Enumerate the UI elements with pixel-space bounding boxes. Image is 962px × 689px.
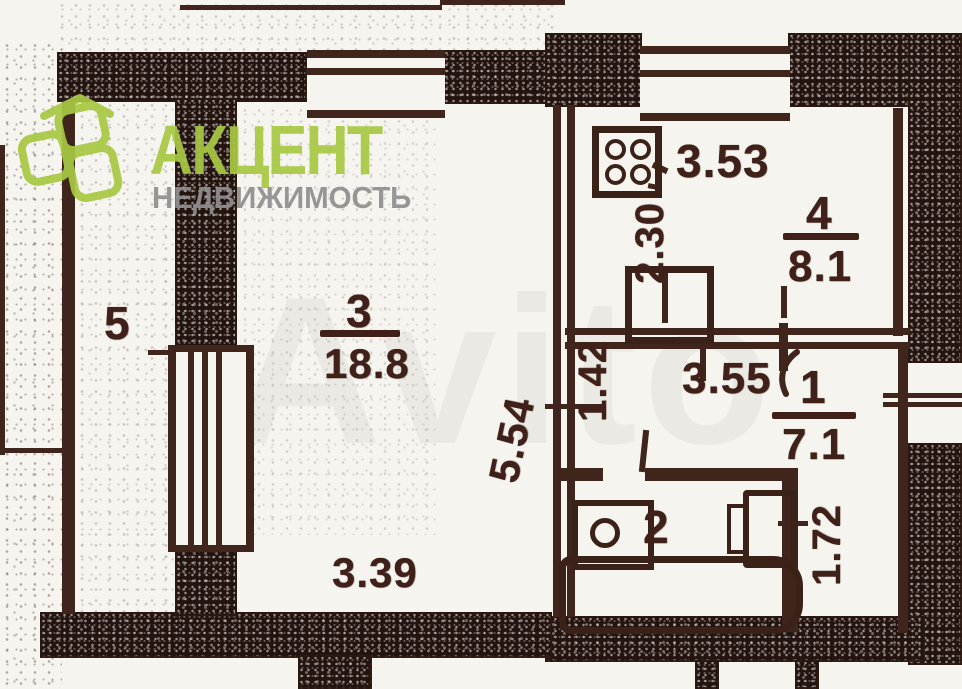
window-symbol <box>640 46 790 121</box>
wall-segment <box>788 33 910 107</box>
stove-burner <box>605 139 626 160</box>
bathroom-wall-line <box>645 468 792 481</box>
wall-segment <box>795 660 819 689</box>
stove-burner <box>630 139 651 160</box>
door-jamb-line <box>779 323 788 371</box>
fraction-bar <box>320 330 400 337</box>
window-pane-line <box>188 352 194 545</box>
area-label: 7.1 <box>782 420 846 470</box>
dimension-label: 3.53 <box>676 134 770 188</box>
room-number-label: 4 <box>806 186 833 240</box>
wall-segment <box>908 33 962 363</box>
wall-segment <box>40 612 552 658</box>
window-pane-line <box>307 68 445 75</box>
window-pane-line <box>640 70 790 77</box>
stove-icon <box>592 126 662 198</box>
dimension-label: 3.55 <box>682 354 772 404</box>
partition-wall-line <box>893 108 903 336</box>
logo-tagline-text: НЕДВИЖИМОСТЬ <box>152 180 411 216</box>
stove-burner <box>630 164 651 185</box>
sink-drain <box>590 518 620 548</box>
dimension-tick <box>781 286 787 318</box>
scan-edge-line <box>440 0 565 5</box>
dimension-label: 2.30 <box>629 198 671 288</box>
room-number-label: 2 <box>643 500 670 554</box>
wall-segment <box>695 660 719 689</box>
room-number-label: 5 <box>104 296 131 350</box>
scan-edge-line <box>0 145 5 455</box>
wall-segment <box>443 50 555 104</box>
balcony-window-symbol <box>168 345 254 552</box>
dimension-label: 1.72 <box>806 500 848 590</box>
floor-plan-scan: Avito <box>0 0 962 689</box>
entrance-door-line <box>883 393 962 398</box>
partition-wall-line <box>553 105 561 617</box>
agency-logo: АКЦЕНТ НЕДВИЖИМОСТЬ <box>14 88 414 213</box>
wall-segment <box>298 655 372 689</box>
area-label: 18.8 <box>324 340 410 388</box>
scan-edge-line <box>180 5 442 10</box>
door-leaf-line <box>639 430 649 472</box>
stove-burner <box>605 164 626 185</box>
partition-wall-line <box>898 345 908 633</box>
room-number-label: 1 <box>800 360 827 414</box>
area-label: 8.1 <box>788 242 852 292</box>
logo-brand-text: АКЦЕНТ <box>150 110 382 190</box>
fraction-bar <box>783 233 859 240</box>
scan-edge-line <box>0 448 62 453</box>
fraction-bar <box>772 412 856 419</box>
dimension-label: 1.42 <box>572 336 614 426</box>
bathroom-wall-line <box>553 468 603 481</box>
dimension-label: 5.54 <box>481 390 543 489</box>
partition-wall-line <box>565 342 910 349</box>
wall-segment <box>545 33 642 107</box>
partition-wall-line <box>565 328 910 335</box>
entrance-door-line <box>883 402 962 407</box>
window-pane-line <box>216 352 222 545</box>
bathtub-icon <box>559 556 803 634</box>
window-pane-line <box>202 352 208 545</box>
stacked-glass-panels-icon <box>14 88 144 208</box>
dimension-label: 3.39 <box>332 549 418 597</box>
